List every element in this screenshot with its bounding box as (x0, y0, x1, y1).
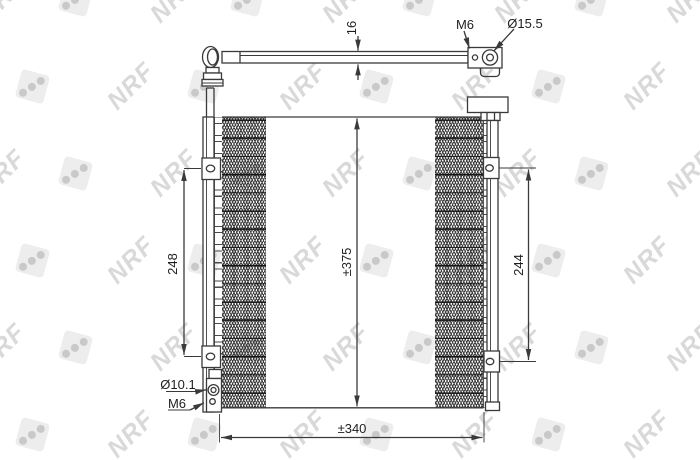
dim-overall-height: ±375 (332, 242, 360, 282)
drawing-lines (0, 0, 700, 460)
top-view (202, 47, 502, 87)
label-thread-top: M6 (452, 16, 478, 32)
dim-right-height: 244 (504, 251, 532, 279)
dim-thickness: 16 (339, 16, 363, 40)
technical-drawing-canvas: NRFNRFNRFNRFNRFNRFNRFNRFNRFNRFNRFNRFNRFN… (0, 0, 700, 460)
label-thread-bottom: M6 (162, 396, 192, 411)
dim-left-height: 248 (158, 250, 186, 278)
label-mount-hole-diameter: Ø10.1 (158, 377, 198, 392)
dim-overall-width: ±340 (330, 420, 374, 436)
label-port-diameter: Ø15.5 (504, 15, 546, 31)
